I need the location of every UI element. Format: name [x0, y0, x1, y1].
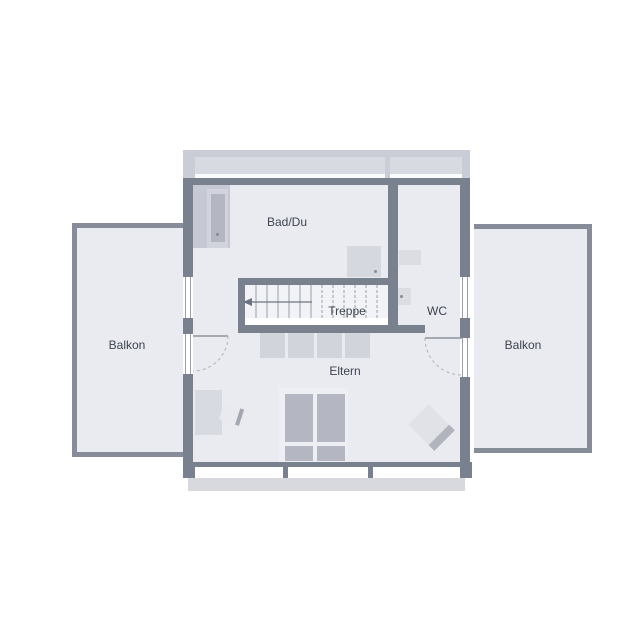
floor-plan: Bad/Du Treppe WC Eltern Balkon Balkon: [0, 0, 636, 636]
bottom-band: [188, 478, 465, 491]
door-frame-right: [460, 338, 470, 377]
wall-right-mid: [460, 318, 470, 338]
bathtub-drain-dot: [216, 233, 219, 236]
bed-pillow-right: [317, 446, 345, 461]
roof-window-right: [390, 157, 462, 174]
bed-mattress-left: [285, 394, 313, 442]
bottom-window-band: [195, 467, 460, 478]
window-left: [183, 277, 193, 318]
wardrobe-section: [288, 332, 313, 358]
wardrobe-section: [317, 332, 342, 358]
stair-treads: [245, 285, 388, 318]
room-label-wc: WC: [427, 304, 447, 318]
room-label-treppe: Treppe: [328, 304, 366, 318]
room-label-bad-du: Bad/Du: [267, 215, 307, 229]
desk: [195, 390, 222, 435]
wall-stair-top: [238, 278, 388, 285]
wc-washbasin: [399, 250, 421, 265]
wall-top: [183, 178, 470, 185]
wardrobe-section: [260, 332, 285, 358]
bed-mattress-right: [317, 394, 345, 442]
wall-right-upper: [460, 185, 470, 277]
wall-stair-bottom: [238, 325, 425, 333]
wall-bottom-corner-left: [183, 462, 195, 478]
room-label-eltern: Eltern: [329, 364, 360, 378]
bath-counter-dot: [374, 270, 377, 273]
wardrobe-section: [345, 332, 370, 358]
bottom-window-mullion-1: [283, 467, 288, 478]
door-frame-left: [183, 334, 193, 374]
bed-pillow-left: [285, 446, 313, 461]
wardrobe: [260, 332, 370, 358]
stair-lower-strip: [245, 318, 388, 325]
wall-interior-vertical: [388, 185, 398, 333]
wall-left-mid: [183, 318, 193, 334]
room-label-balkon-right: Balkon: [505, 338, 542, 352]
wall-left-upper: [183, 185, 193, 277]
window-right: [460, 277, 470, 318]
bottom-window-mullion-2: [368, 467, 373, 478]
roof-window-left: [195, 157, 385, 174]
room-label-balkon-left: Balkon: [109, 338, 146, 352]
wall-bottom-corner-right: [458, 462, 472, 478]
wc-toilet-dot: [400, 295, 403, 298]
